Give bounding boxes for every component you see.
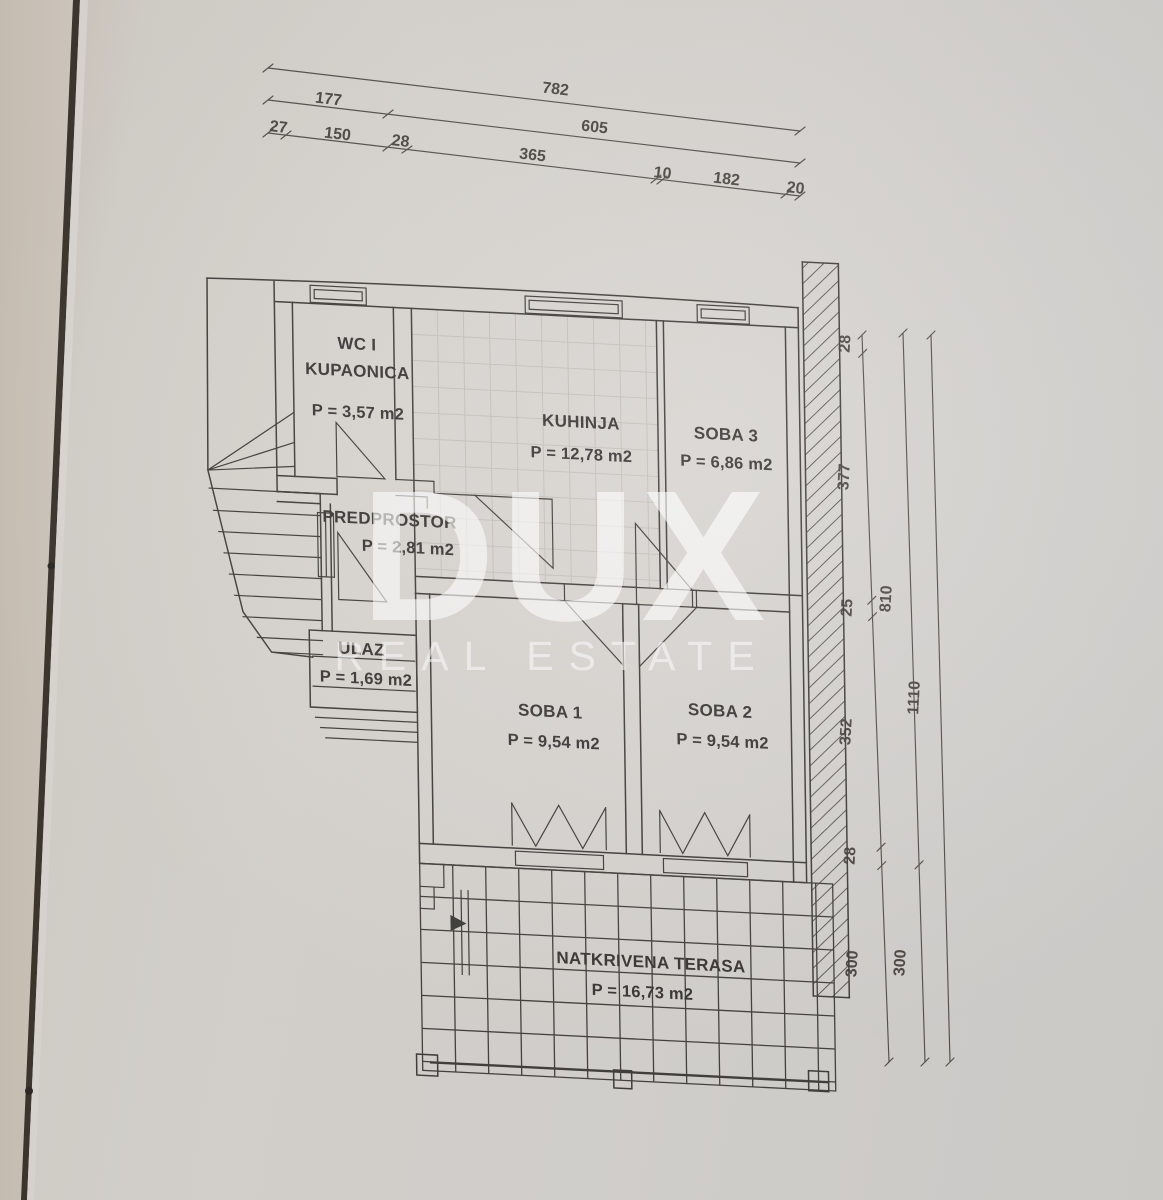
book-spine-edge xyxy=(0,0,88,1200)
dim-top-177: 177 xyxy=(314,90,343,110)
dim-top-10: 10 xyxy=(653,164,673,183)
dim-top-365: 365 xyxy=(518,146,547,166)
window-icons-south xyxy=(512,803,751,877)
dim-top-28: 28 xyxy=(391,132,411,151)
label-soba2-area: P = 9,54 m2 xyxy=(676,730,768,753)
dim-right-810: 810 xyxy=(877,585,895,613)
dim-top-782: 782 xyxy=(541,80,570,100)
terrace xyxy=(414,863,836,1099)
label-soba1-area: P = 9,54 m2 xyxy=(507,731,599,754)
label-kuhinja: KUHINJA xyxy=(542,411,620,434)
entrance-arrow-icon xyxy=(450,915,466,932)
dim-top-27: 27 xyxy=(269,118,289,137)
dimension-chain-right: 28 377 25 352 28 300 810 300 1110 xyxy=(835,329,954,1066)
photographed-floorplan-page: 782 177 605 27 150 28 365 10 182 20 xyxy=(0,0,1163,1200)
hatched-neighbor-wall xyxy=(802,262,849,998)
watermark-brand-logo: DUX xyxy=(361,453,772,660)
dim-top-20: 20 xyxy=(786,179,806,198)
label-wc-line1: WC I xyxy=(337,334,376,355)
dim-top-150: 150 xyxy=(323,125,352,145)
dimension-chain-top: 782 177 605 27 150 28 365 10 182 20 xyxy=(263,64,805,200)
label-soba3: SOBA 3 xyxy=(694,423,759,445)
label-soba2: SOBA 2 xyxy=(688,700,753,722)
dim-top-182: 182 xyxy=(712,170,741,190)
label-wc-line2: KUPAONICA xyxy=(305,359,410,383)
watermark-tagline: REAL ESTATE xyxy=(334,633,769,679)
floorplan-svg: 782 177 605 27 150 28 365 10 182 20 xyxy=(0,0,1163,1200)
staircase xyxy=(205,278,323,658)
dim-top-605: 605 xyxy=(580,118,609,138)
label-terasa-area: P = 16,73 m2 xyxy=(591,981,693,1004)
dim-right-1110: 1110 xyxy=(905,680,924,715)
label-wc-area: P = 3,57 m2 xyxy=(312,401,404,424)
watermark: DUX REAL ESTATE xyxy=(334,453,771,679)
dim-right-300b: 300 xyxy=(891,949,909,977)
label-soba1: SOBA 1 xyxy=(518,700,583,722)
